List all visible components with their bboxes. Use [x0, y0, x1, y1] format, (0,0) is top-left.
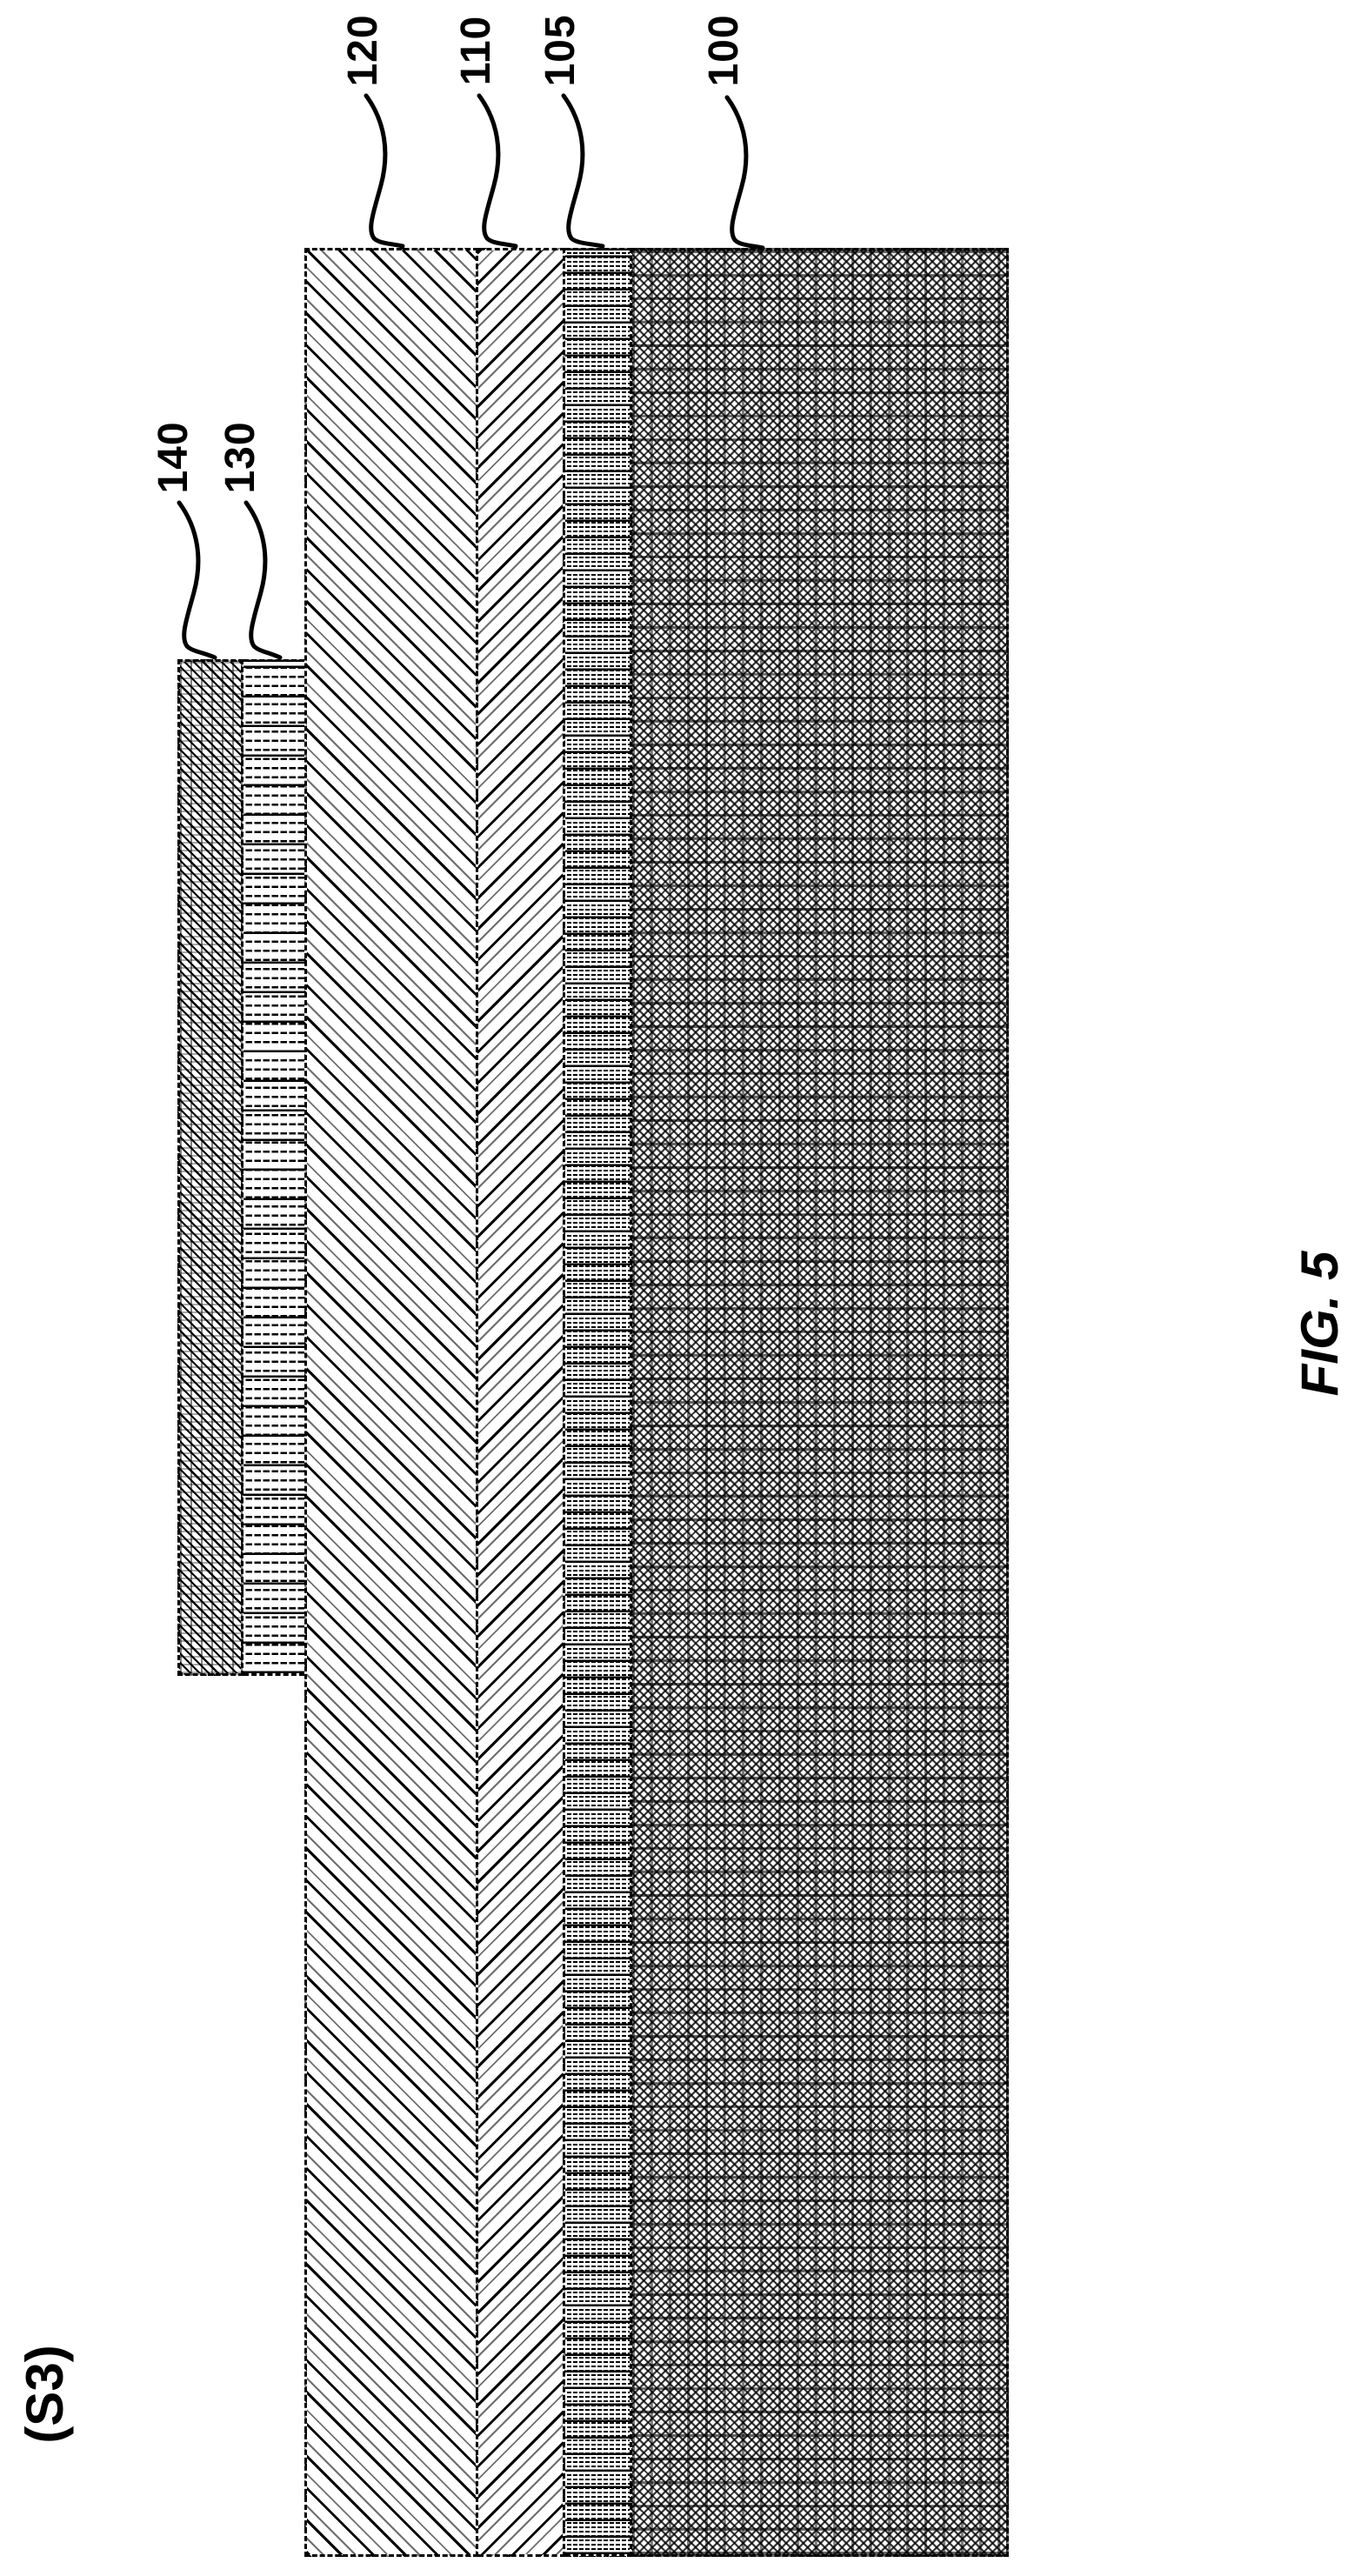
patent-figure-page: 120 110 105 100 140 130 (S3) FIG. 5 — [0, 0, 1361, 2576]
leader-line-110 — [479, 96, 516, 246]
ref-label-105: 105 — [540, 14, 582, 86]
figure-caption: FIG. 5 — [1294, 1251, 1346, 1397]
step-label: (S3) — [19, 2345, 71, 2443]
leader-line-120 — [366, 96, 403, 246]
layer-130-region — [244, 659, 304, 1676]
layer-105-region — [565, 248, 632, 2557]
ref-label-140: 140 — [153, 421, 195, 493]
leader-line-130 — [246, 503, 280, 657]
ref-label-120: 120 — [343, 14, 384, 86]
leader-line-100 — [727, 97, 763, 248]
ref-label-130: 130 — [220, 421, 262, 493]
layer-140-region — [177, 659, 244, 1676]
layer-110-region — [478, 248, 565, 2557]
ref-label-100: 100 — [704, 14, 745, 86]
layer-100-region — [632, 248, 1009, 2557]
ref-label-110: 110 — [456, 16, 497, 85]
layer-120-region — [304, 248, 478, 2557]
leader-line-105 — [564, 96, 603, 246]
leader-line-140 — [179, 503, 215, 657]
